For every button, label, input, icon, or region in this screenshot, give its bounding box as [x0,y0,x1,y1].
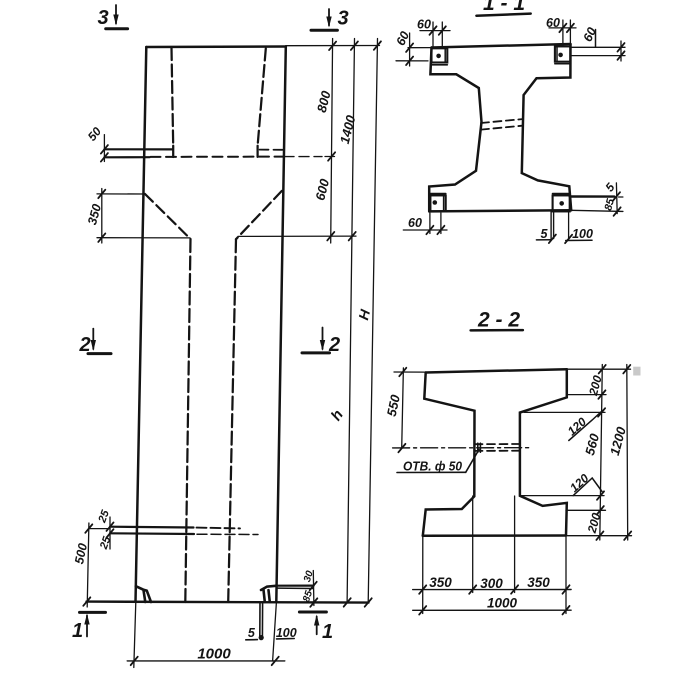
svg-text:60: 60 [408,216,422,230]
svg-text:2: 2 [328,334,340,356]
svg-text:1 - 1: 1 - 1 [483,0,525,15]
svg-text:5: 5 [248,626,256,640]
svg-text:2 - 2: 2 - 2 [477,309,520,332]
svg-text:100: 100 [572,227,593,241]
svg-text:60: 60 [546,16,560,30]
svg-text:3: 3 [97,7,108,29]
svg-text:1000: 1000 [487,596,518,611]
svg-text:350: 350 [527,575,550,590]
svg-text:350: 350 [429,575,452,590]
svg-text:300: 300 [480,576,503,591]
svg-text:5: 5 [541,227,549,241]
svg-text:3: 3 [337,8,348,30]
svg-text:ОТВ. ф 50: ОТВ. ф 50 [403,460,462,474]
svg-text:1: 1 [72,620,83,642]
svg-text:1000: 1000 [197,645,231,662]
svg-text:1: 1 [322,621,333,643]
svg-text:60: 60 [417,18,431,32]
